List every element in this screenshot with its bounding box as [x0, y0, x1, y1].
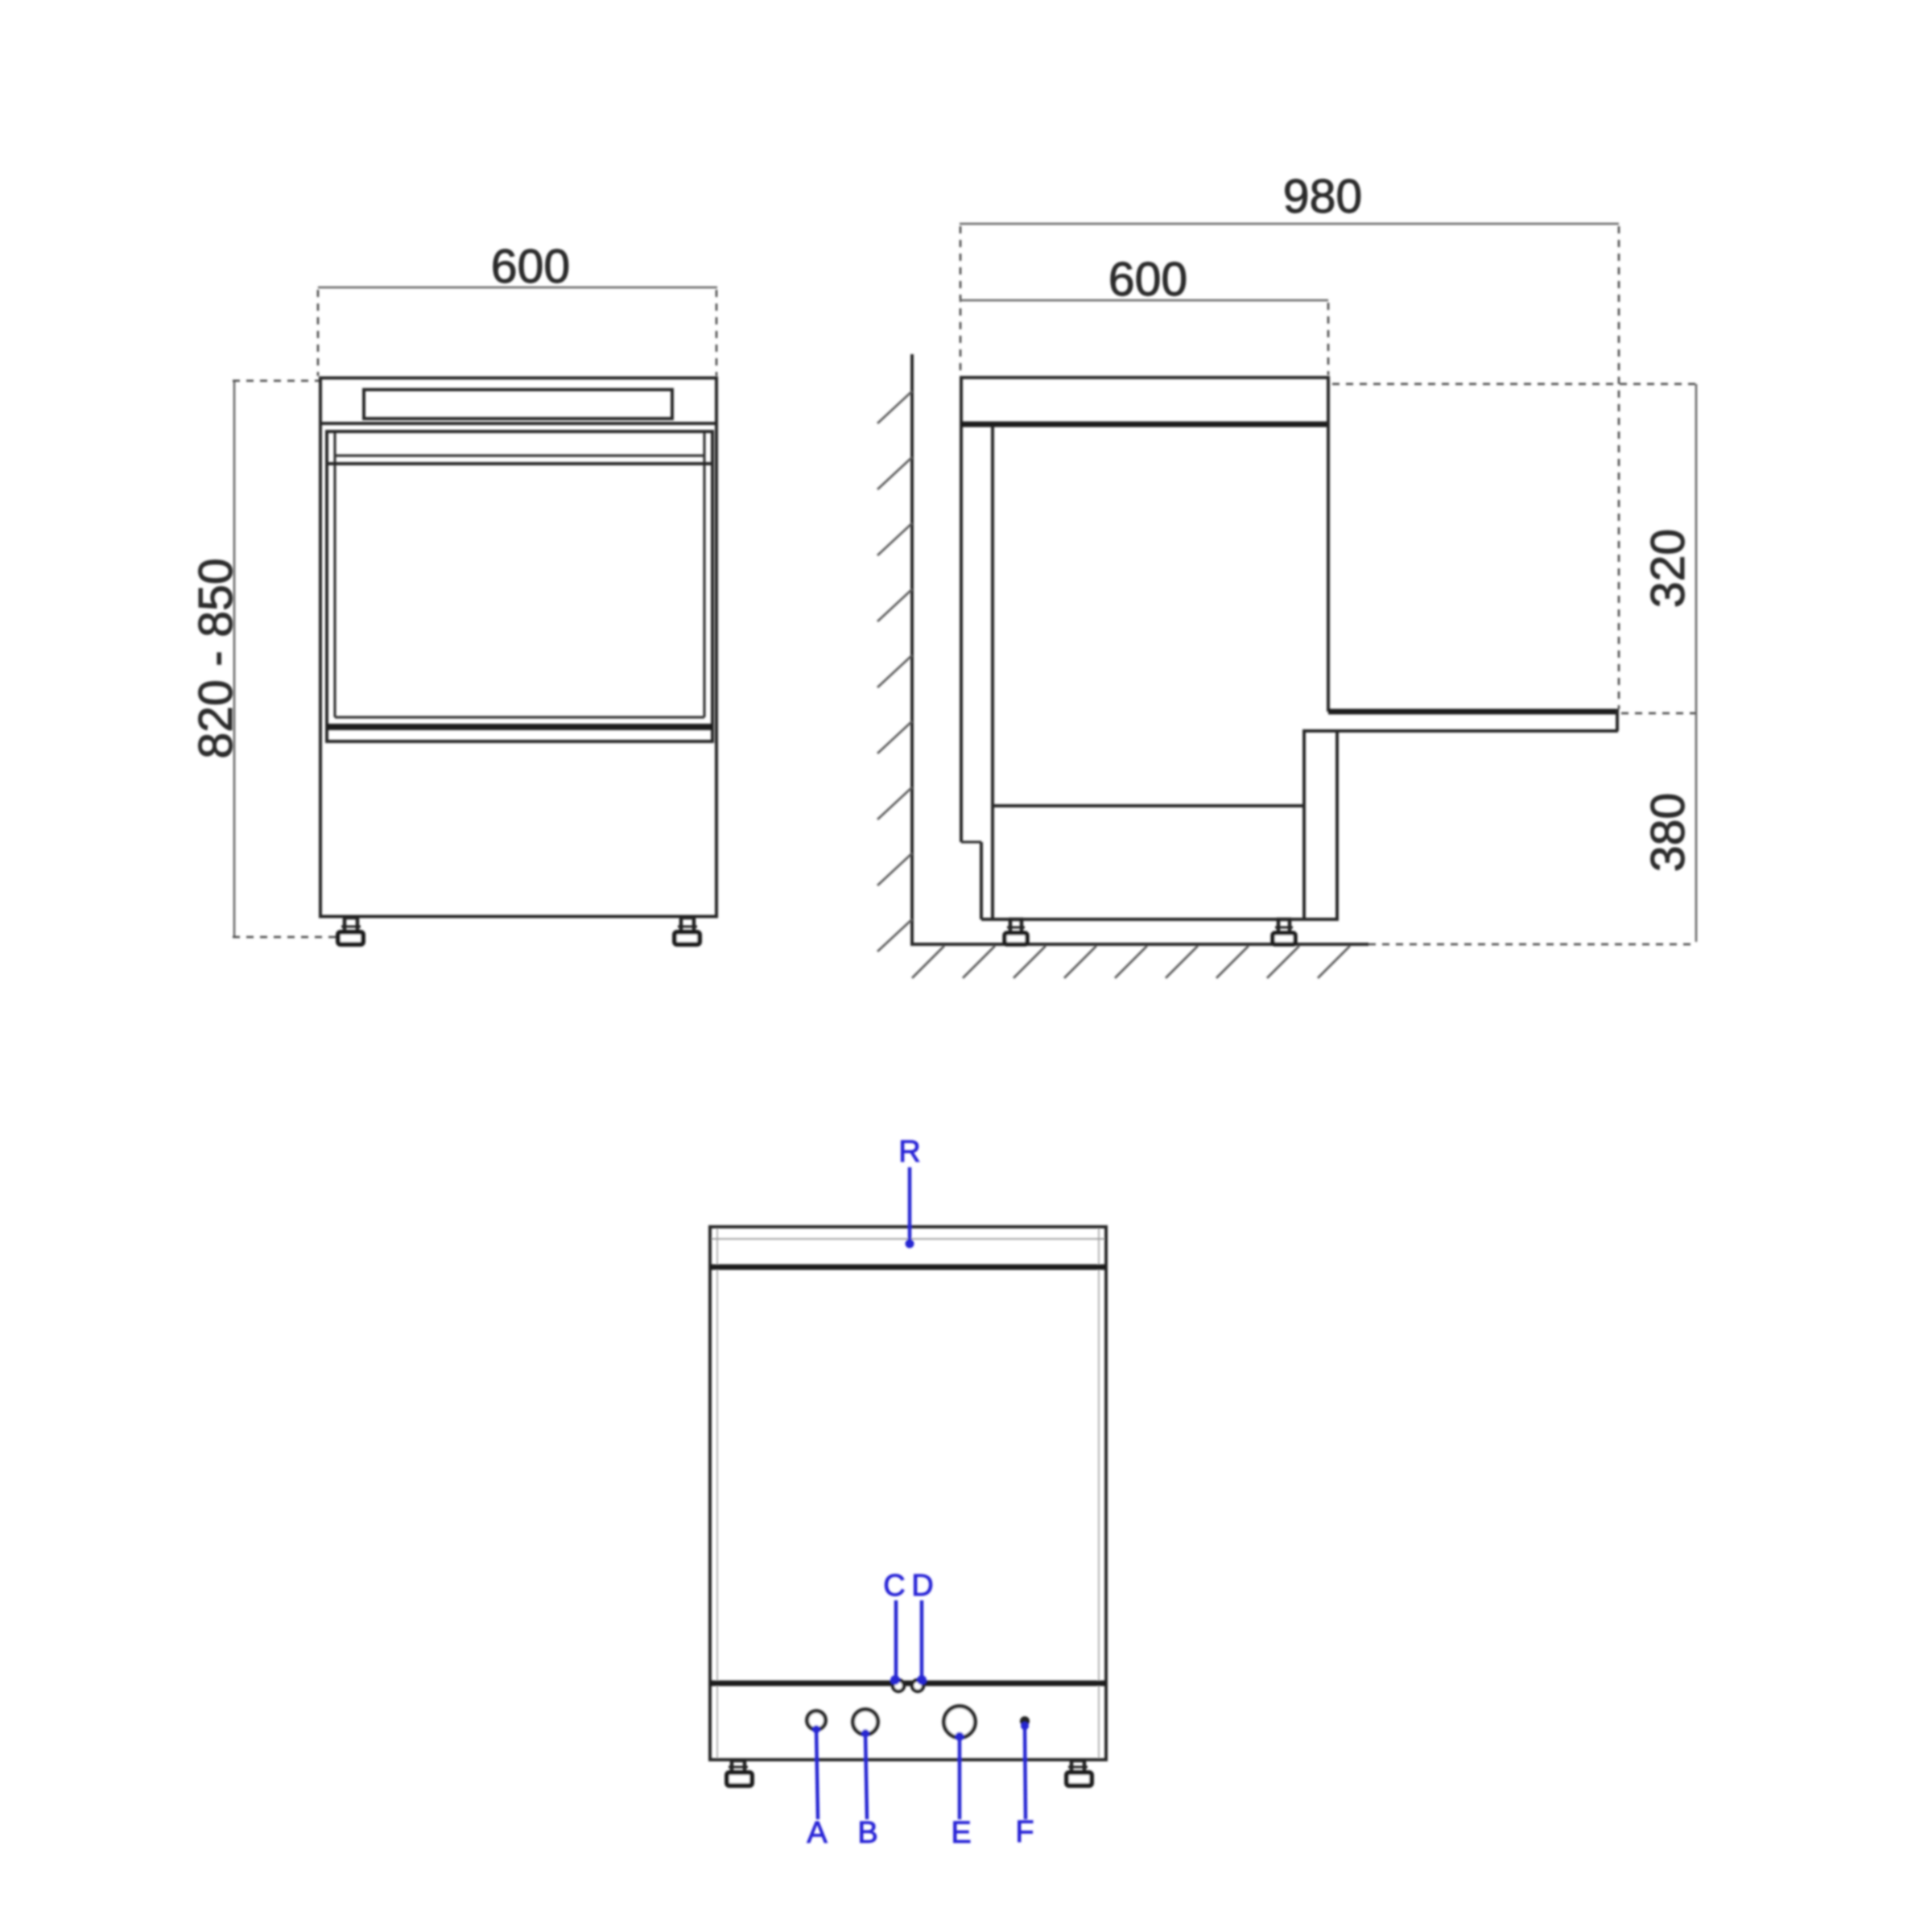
svg-text:320: 320 [1641, 529, 1695, 608]
svg-text:600: 600 [491, 240, 570, 293]
svg-text:E: E [951, 1816, 971, 1850]
svg-text:980: 980 [1283, 170, 1362, 223]
svg-text:C: C [883, 1569, 905, 1603]
svg-text:600: 600 [1108, 253, 1187, 306]
svg-text:D: D [911, 1569, 933, 1603]
svg-text:380: 380 [1641, 793, 1695, 872]
svg-text:A: A [807, 1816, 828, 1850]
svg-text:F: F [1015, 1815, 1034, 1849]
svg-text:R: R [898, 1135, 920, 1169]
svg-text:B: B [857, 1816, 877, 1850]
